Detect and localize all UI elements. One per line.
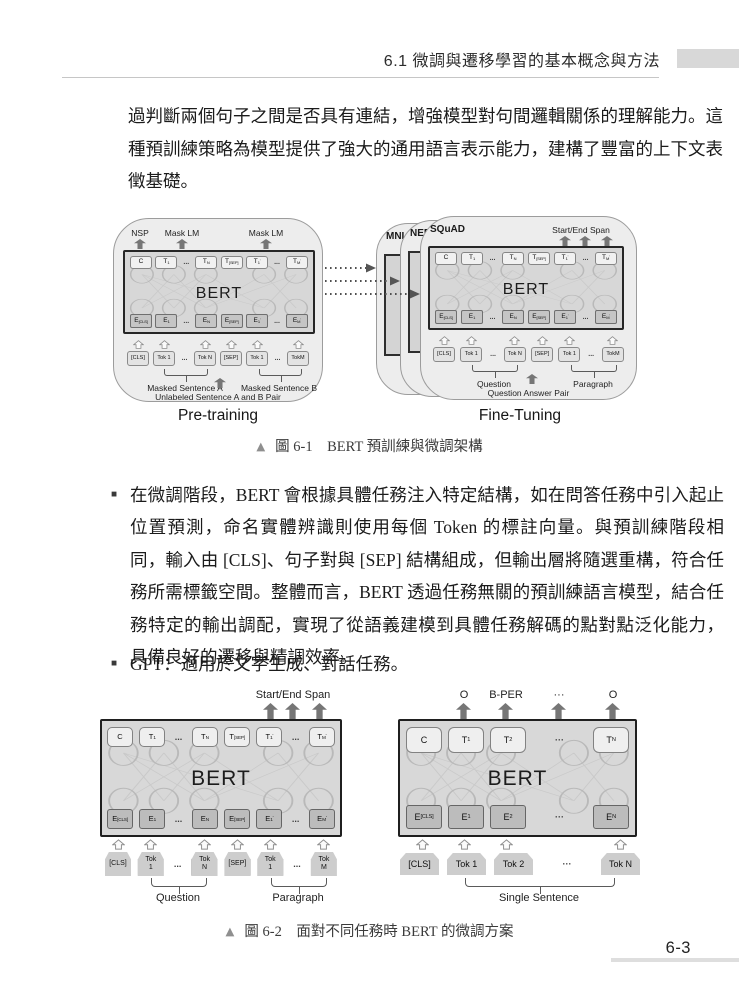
token-box: E[SEP] [221, 314, 243, 328]
ellipsis: ... [272, 318, 283, 325]
token-box: EM' [286, 314, 308, 328]
bracket-sentence-b [259, 369, 302, 376]
token-box: TN [593, 727, 629, 753]
pretraining-input-label: Unlabeled Sentence A and B Pair [114, 392, 322, 402]
token-box: TokM [287, 351, 309, 366]
ellipsis: ... [487, 255, 498, 262]
token-box: T1 [461, 252, 483, 265]
ellipsis: ... [580, 255, 591, 262]
bert-label: BERT [430, 281, 622, 299]
input-arrow-row [433, 335, 624, 345]
token-box: E2 [490, 805, 526, 829]
caption-triangle-icon: ▲ [256, 439, 265, 453]
token-box: Tok1 [138, 852, 164, 876]
ellipsis: ... [580, 314, 591, 321]
token-box: EN [195, 314, 217, 328]
token-box: E[SEP] [224, 809, 250, 829]
e-row: E[CLS]E1...ENE[SEP]E1'...EM' [130, 314, 308, 328]
bullet-text: GPT：適用於文字生成、對話任務。 [130, 648, 724, 681]
intro-paragraph: 過判斷兩個句子之間是否具有連結，增強模型對句間邏輯關係的理解能力。這種預訓練策略… [128, 100, 723, 198]
header-tab-decoration [677, 49, 739, 68]
up-block-arrow-icon [579, 236, 591, 246]
token-box: TM' [595, 252, 617, 265]
token-box: EM' [309, 809, 335, 829]
e-row: E[CLS]E1...ENE[SEP]E1'...EM' [435, 310, 617, 324]
token-box: Tok N [601, 853, 640, 875]
up-block-arrow-icon [260, 239, 272, 249]
bullet-finetune-stage: ■ 在微調階段，BERT 會根據具體任務注入特定結構，如在問答任務中引入起止位置… [111, 479, 724, 673]
token-box: T1' [256, 727, 282, 747]
pretraining-title: Pre-training [113, 407, 323, 425]
up-block-arrow-icon [605, 703, 620, 719]
bullet-marker: ■ [111, 648, 117, 681]
ellipsis: ... [289, 732, 303, 742]
token-box: C [406, 727, 442, 753]
token-box: Tok 1 [447, 853, 486, 875]
up-arrow-icon [224, 839, 250, 850]
arrow-spacer [530, 839, 596, 850]
bracket-question [151, 878, 207, 887]
token-box: TokN [192, 852, 218, 876]
token-box: Tok 2 [494, 853, 533, 875]
arrow-spacer [171, 839, 185, 850]
token-box: E[CLS] [406, 805, 442, 829]
token-box: C [435, 252, 457, 265]
token-box: TM' [309, 727, 335, 747]
ner-label-o-1: O [460, 689, 469, 701]
arrow-spacer [272, 339, 283, 349]
up-arrow-icon [504, 335, 526, 345]
input-row: [CLS]Tok 1...Tok N[SEP]Tok 1...TokM [127, 351, 309, 366]
t-row: CT1T2···TN [406, 727, 629, 753]
up-block-arrow-icon [551, 703, 566, 719]
bracket-sentence-a [164, 369, 208, 376]
bert-label: BERT [102, 767, 340, 791]
up-arrow-icon [257, 839, 283, 850]
token-box: E1 [448, 805, 484, 829]
up-arrow-icon [127, 339, 149, 349]
caption-triangle-icon: ▲ [226, 924, 235, 938]
token-box: EN [192, 809, 218, 829]
up-arrow-icon [404, 839, 440, 850]
output-label-masklm-1: Mask LM [165, 228, 199, 238]
token-box: E[CLS] [130, 314, 152, 328]
token-box: T1 [155, 256, 177, 269]
up-arrow-icon [105, 839, 131, 850]
e-row: E[CLS]E1...ENE[SEP]E1'...EM' [107, 809, 335, 829]
token-box: Tok 1 [460, 347, 482, 362]
arrow-spacer [290, 839, 304, 850]
caption-text: 圖 6-1 BERT 預訓練與微調架構 [275, 439, 483, 455]
e-row: E[CLS]E1E2···EN [406, 805, 629, 829]
bert-box: CT1...TNT[SEP]T1'...TM' BERT E[CLS]E1...… [100, 719, 342, 837]
arrow-spacer [179, 339, 190, 349]
finetuning-title: Fine-Tuning [390, 407, 650, 425]
book-page: 6.1 微調與遷移學習的基本概念與方法 過判斷兩個句子之間是否具有連結，增強模型… [0, 0, 739, 1000]
ellipsis: ... [487, 314, 498, 321]
token-box: T[SEP] [224, 727, 250, 747]
up-block-arrow-icon [312, 703, 327, 719]
up-block-arrow-icon [134, 239, 146, 249]
token-box: Tok N [194, 351, 216, 366]
token-box: [CLS] [400, 853, 439, 875]
figure-6-1: NSP Mask LM Mask LM CT1...TNT[SEP]T1'...… [100, 214, 645, 432]
up-block-arrow-icon [601, 236, 613, 246]
token-box: TN [192, 727, 218, 747]
token-box: TN [502, 252, 524, 265]
finetuning-input-label: Question Answer Pair [421, 388, 636, 398]
up-block-arrow-icon [456, 703, 471, 719]
token-box: TM' [286, 256, 308, 269]
token-box: [SEP] [531, 347, 553, 362]
token-box: EM' [595, 310, 617, 324]
bullet-marker: ■ [111, 479, 117, 673]
token-box: E1' [256, 809, 282, 829]
up-arrow-icon [446, 839, 482, 850]
bracket-single-sentence [465, 878, 615, 887]
output-label-masklm-2: Mask LM [249, 228, 283, 238]
up-arrow-icon [194, 339, 216, 349]
pretraining-diagram: NSP Mask LM Mask LM CT1...TNT[SEP]T1'...… [113, 218, 323, 402]
token-box: E1' [246, 314, 268, 328]
up-block-arrow-icon [526, 374, 538, 384]
group-label-paragraph: Paragraph [272, 892, 323, 904]
token-box: Tok 1 [558, 347, 580, 362]
token-box: [SEP] [220, 351, 242, 366]
ellipsis: ... [488, 351, 499, 358]
input-arrow-row [105, 839, 337, 850]
token-box: Tok 1 [153, 351, 175, 366]
arrow-spacer [488, 335, 499, 345]
group-label-single-sentence: Single Sentence [499, 892, 579, 904]
header-rule [62, 77, 659, 78]
ellipsis: ... [181, 318, 192, 325]
bert-box: CT1T2···TN BERT E[CLS]E1E2···EN [398, 719, 637, 837]
up-block-arrow-icon [498, 703, 513, 719]
bullet-text: 在微調階段，BERT 會根據具體任務注入特定結構，如在問答任務中引入起止位置預測… [130, 479, 724, 673]
up-arrow-icon [602, 839, 638, 850]
token-box: C [107, 727, 133, 747]
token-box: E1' [554, 310, 576, 324]
token-box: T1' [246, 256, 268, 269]
bracket-paragraph [271, 878, 327, 887]
ellipsis: ... [290, 859, 304, 869]
bert-label: BERT [400, 767, 635, 791]
ellipsis: ... [272, 355, 283, 362]
ellipsis: ... [181, 259, 192, 266]
ellipsis: ... [289, 814, 303, 824]
token-box: [SEP] [224, 852, 250, 876]
token-box: [CLS] [127, 351, 149, 366]
token-box: Tok 1 [246, 351, 268, 366]
token-box: T[SEP] [528, 252, 550, 265]
ellipsis: ··· [541, 859, 593, 869]
token-box: EN [593, 805, 629, 829]
up-block-arrow-icon [285, 703, 300, 719]
ellipsis: ··· [532, 735, 587, 745]
ner-label-o-2: O [609, 689, 618, 701]
input-row: [CLS]Tok 1...Tok N[SEP]Tok 1...TokM [433, 347, 624, 362]
bracket-question [472, 365, 518, 372]
up-arrow-icon [220, 339, 242, 349]
token-box: T1' [554, 252, 576, 265]
group-label-question: Question [156, 892, 200, 904]
input-arrow-row [127, 339, 309, 349]
t-row: CT1...TNT[SEP]T1'...TM' [130, 256, 308, 269]
up-block-arrow-icon [559, 236, 571, 246]
ellipsis: ... [179, 355, 190, 362]
ner-diagram: O B-PER ··· O CT1T2···TN BERT E[CLS]E1E2… [398, 686, 644, 918]
output-label-nsp: NSP [131, 228, 148, 238]
token-box: E[CLS] [435, 310, 457, 324]
t-row: CT1...TNT[SEP]T1'...TM' [107, 727, 335, 747]
ellipsis: ... [272, 259, 283, 266]
ner-label-ellipsis: ··· [554, 689, 565, 701]
arrow-spacer [586, 335, 597, 345]
section-header: 6.1 微調與遷移學習的基本概念與方法 [0, 47, 660, 71]
up-arrow-icon [558, 335, 580, 345]
up-arrow-icon [460, 335, 482, 345]
token-box: T1 [139, 727, 165, 747]
ellipsis: ... [586, 351, 597, 358]
bullet-gpt: ■ GPT：適用於文字生成、對話任務。 [111, 648, 724, 681]
token-box: T[SEP] [221, 256, 243, 269]
bert-box: CT1...TNT[SEP]T1'...TM' BERT E[CLS]E1...… [428, 246, 624, 330]
figure-6-2-caption: ▲圖 6-2 面對不同任務時 BERT 的微調方案 [0, 920, 739, 941]
token-box: Tok N [504, 347, 526, 362]
up-arrow-icon [602, 335, 624, 345]
token-box: E1 [139, 809, 165, 829]
token-box: T1 [448, 727, 484, 753]
token-box: C [130, 256, 152, 269]
page-number-bar [611, 958, 739, 962]
up-arrow-icon [311, 839, 337, 850]
token-box: [CLS] [105, 852, 131, 876]
token-box: E[SEP] [528, 310, 550, 324]
up-arrow-icon [287, 339, 309, 349]
input-arrow-row [404, 839, 638, 850]
t-row: CT1...TNT[SEP]T1'...TM' [435, 252, 617, 265]
up-arrow-icon [246, 339, 268, 349]
token-box: E1 [461, 310, 483, 324]
token-box: Tok1 [257, 852, 283, 876]
finetune-card-squad: SQuAD Start/End Span CT1...TNT[SEP]T1'..… [420, 216, 637, 400]
ellipsis: ... [172, 732, 186, 742]
caption-text: 圖 6-2 面對不同任務時 BERT 的微調方案 [244, 924, 513, 940]
input-row: [CLS]Tok1...TokN[SEP]Tok1...TokM [105, 852, 337, 876]
up-block-arrow-icon [176, 239, 188, 249]
input-row: [CLS]Tok 1Tok 2···Tok N [400, 853, 640, 875]
bracket-paragraph [571, 365, 617, 372]
figure-6-1-caption: ▲圖 6-1 BERT 預訓練與微調架構 [0, 435, 739, 456]
bert-label: BERT [125, 285, 313, 303]
ellipsis: ... [172, 814, 186, 824]
up-block-arrow-icon [263, 703, 278, 719]
token-box: TokM [602, 347, 624, 362]
ellipsis: ··· [532, 812, 587, 822]
ner-label-bper: B-PER [489, 689, 523, 701]
token-box: EN [502, 310, 524, 324]
output-label-span: Start/End Span [256, 689, 331, 701]
up-arrow-icon [531, 335, 553, 345]
ellipsis: ... [171, 859, 185, 869]
figure-6-2: Start/End Span CT1...TNT[SEP]T1'...TM' B… [95, 686, 644, 918]
token-box: E[CLS] [107, 809, 133, 829]
token-box: [CLS] [433, 347, 455, 362]
up-arrow-icon [192, 839, 218, 850]
qa-diagram: Start/End Span CT1...TNT[SEP]T1'...TM' B… [95, 686, 347, 918]
token-box: E1 [155, 314, 177, 328]
transfer-arrows [325, 262, 425, 302]
up-arrow-icon [138, 839, 164, 850]
up-arrow-icon [433, 335, 455, 345]
up-arrow-icon [488, 839, 524, 850]
card-label-squad: SQuAD [430, 224, 465, 235]
token-box: T2 [490, 727, 526, 753]
token-box: TokM [311, 852, 337, 876]
bert-box: CT1...TNT[SEP]T1'...TM' BERT E[CLS]E1...… [123, 250, 315, 334]
up-arrow-icon [153, 339, 175, 349]
token-box: TN [195, 256, 217, 269]
page-number: 6-3 [0, 939, 691, 958]
output-label-span: Start/End Span [552, 225, 610, 235]
